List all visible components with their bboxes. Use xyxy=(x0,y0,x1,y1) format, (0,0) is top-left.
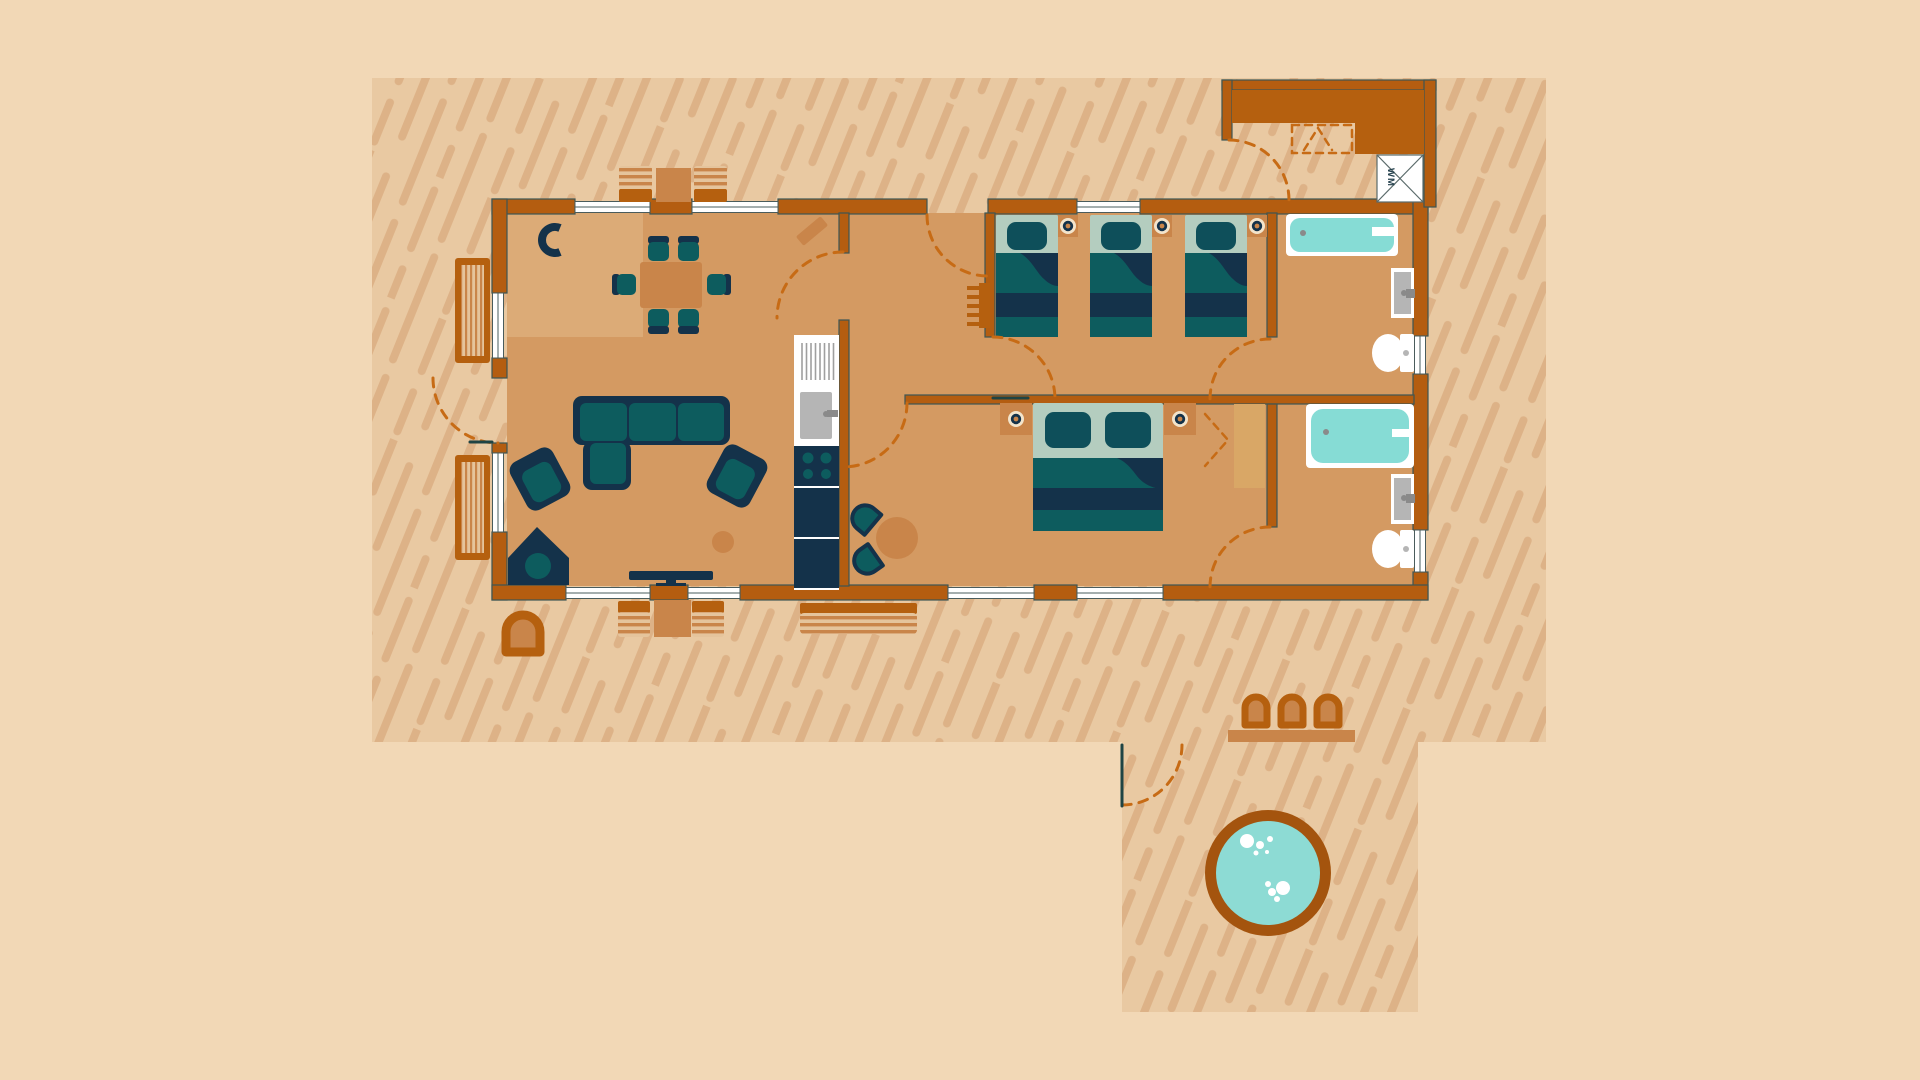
double-bed xyxy=(1033,403,1163,531)
wall-porch-left xyxy=(1222,80,1232,140)
washing-machine: WM xyxy=(1377,155,1423,202)
window xyxy=(692,202,778,213)
wall-bottom xyxy=(492,585,566,600)
washing-machine-label: WM xyxy=(1385,168,1396,187)
dining-chair xyxy=(707,274,731,295)
sink xyxy=(1391,474,1415,524)
patio-table xyxy=(654,600,691,637)
wall-living-divider xyxy=(839,320,849,586)
deck-stool xyxy=(1281,697,1303,725)
wall-left xyxy=(492,443,507,453)
wall-left xyxy=(492,199,507,293)
outdoor-bench xyxy=(800,603,917,634)
hob xyxy=(794,446,839,486)
toilet xyxy=(1372,334,1414,372)
dining-chair xyxy=(648,236,669,261)
kitchen-strip xyxy=(794,335,839,590)
floor-plan-canvas: WM xyxy=(0,0,1920,1080)
toilet xyxy=(1372,530,1414,568)
lamp-icon xyxy=(1249,218,1265,234)
shower xyxy=(1306,404,1414,468)
wall-top xyxy=(778,199,927,214)
kitchen-unit xyxy=(794,539,839,588)
hot-tub-deck xyxy=(1228,697,1355,742)
dining-table xyxy=(640,262,702,308)
wall-top xyxy=(988,199,1077,214)
single-bed xyxy=(1090,215,1152,337)
window xyxy=(493,453,504,532)
dining-chair xyxy=(648,309,669,334)
porch-storage-block xyxy=(1355,90,1424,154)
small-table xyxy=(876,517,918,559)
patio-chair xyxy=(692,601,724,637)
wall-left xyxy=(492,358,507,378)
coffee-table xyxy=(712,531,734,553)
kitchen-unit xyxy=(794,488,839,537)
single-bed xyxy=(1185,215,1247,337)
wall-bottom xyxy=(650,585,688,600)
single-bed xyxy=(996,215,1058,337)
patio-table xyxy=(656,168,691,202)
window xyxy=(1077,202,1140,213)
wall-porch-right xyxy=(1424,80,1436,207)
lamp-icon xyxy=(1172,411,1188,427)
patio-chair xyxy=(618,601,650,637)
deck-stool xyxy=(1317,697,1339,725)
planter-bench xyxy=(455,258,490,363)
lamp-icon xyxy=(1008,411,1024,427)
lamp-icon xyxy=(1060,218,1076,234)
bathtub xyxy=(1286,214,1398,256)
window xyxy=(1415,336,1426,374)
deck-stool xyxy=(1245,697,1267,725)
window xyxy=(688,588,740,599)
arch-chair xyxy=(506,615,540,652)
dining-chair xyxy=(612,274,636,295)
wall-bathroom xyxy=(1267,404,1277,527)
lamp-icon xyxy=(1154,218,1170,234)
wall-bottom xyxy=(1163,585,1428,600)
window xyxy=(1077,588,1163,599)
sink xyxy=(1391,268,1415,318)
dining-chair xyxy=(678,236,699,261)
triple-bedroom xyxy=(996,215,1267,337)
patio-set-bottom xyxy=(618,600,724,637)
window xyxy=(566,588,650,599)
patio-chair xyxy=(694,166,727,202)
wall-bathroom xyxy=(1267,213,1277,337)
hot-tub xyxy=(1205,810,1331,936)
wall-porch-top xyxy=(1222,80,1436,90)
window xyxy=(575,202,650,213)
wall-bedroom-divider xyxy=(905,395,1414,404)
dining-chair xyxy=(678,309,699,334)
wall-right xyxy=(1413,374,1428,530)
wall-right xyxy=(1413,199,1428,336)
window xyxy=(948,588,1034,599)
deck-bench xyxy=(1228,730,1355,742)
window xyxy=(1415,530,1426,572)
wall-living-divider xyxy=(839,213,849,253)
porch-counter xyxy=(1232,90,1355,123)
wall-bottom xyxy=(740,585,948,600)
wall-bottom xyxy=(1034,585,1077,600)
wardrobe xyxy=(1234,404,1265,488)
window xyxy=(493,293,504,358)
patio-set-top xyxy=(619,166,727,202)
planter-bench xyxy=(455,455,490,560)
patio-chair xyxy=(619,166,652,202)
